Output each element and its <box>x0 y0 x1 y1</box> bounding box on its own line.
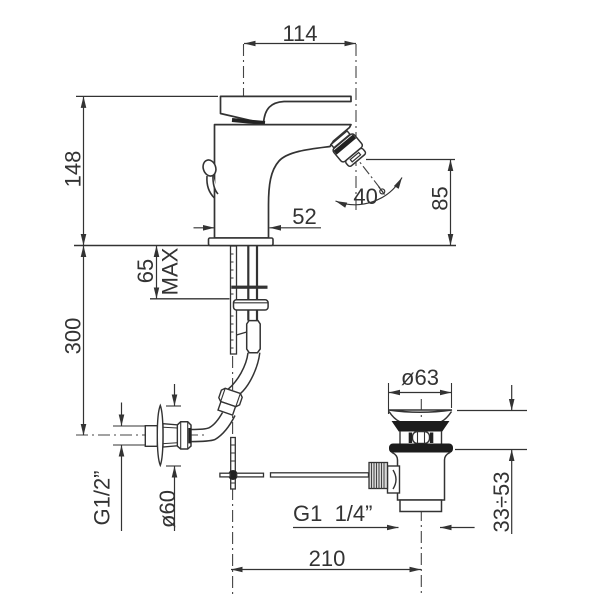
svg-text:40°: 40° <box>353 184 386 209</box>
svg-text:85: 85 <box>428 186 453 210</box>
svg-text:300: 300 <box>61 318 86 355</box>
svg-text:148: 148 <box>61 151 86 188</box>
svg-text:210: 210 <box>309 546 346 571</box>
svg-text:65: 65 <box>133 259 158 283</box>
svg-text:ø60: ø60 <box>155 490 180 528</box>
svg-text:G1 1/4”: G1 1/4” <box>293 501 372 526</box>
svg-text:52: 52 <box>292 204 316 229</box>
svg-text:MAX: MAX <box>158 247 183 295</box>
svg-text:ø63: ø63 <box>401 365 439 390</box>
svg-text:33÷53: 33÷53 <box>489 471 514 532</box>
svg-text:114: 114 <box>282 21 317 46</box>
svg-text:G1/2”: G1/2” <box>90 470 115 525</box>
